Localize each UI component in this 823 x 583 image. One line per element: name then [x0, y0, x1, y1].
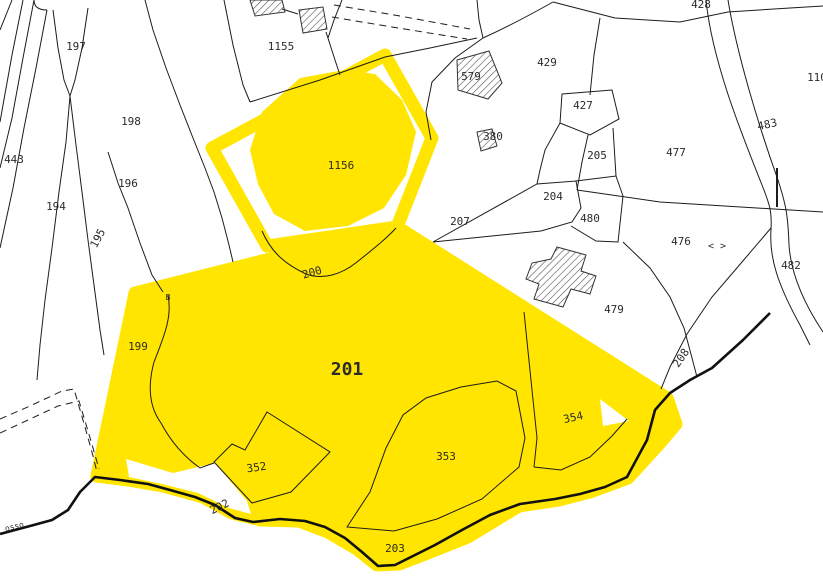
parcel-label-352: 352: [246, 460, 267, 476]
parcel-label-194: 194: [46, 200, 66, 213]
parcel-label-476: 476: [671, 235, 691, 248]
cadastral-map: 1971984431961941951991155115620020135235…: [0, 0, 823, 583]
parcel-label-201: 201: [331, 359, 364, 380]
parcel-label-204: 204: [543, 190, 563, 203]
annotation-label-<>: < >: [708, 241, 726, 252]
parcel-label-443: 443: [4, 153, 24, 166]
building-top-1: [250, 0, 285, 16]
annotation-label-B: B: [166, 293, 171, 302]
highlight-layer: [97, 55, 676, 565]
parcel-label-479: 479: [604, 303, 624, 316]
parcel-label-428: 428: [691, 0, 711, 11]
parcel-label-207: 207: [450, 215, 470, 228]
parcel-label-197: 197: [66, 40, 86, 53]
parcel-label-199: 199: [128, 340, 148, 353]
parcel-label-427: 427: [573, 99, 593, 112]
cadastral-map-viewport: 1971984431961941951991155115620020135235…: [0, 0, 823, 583]
parcel-label-380: 380: [483, 130, 503, 143]
parcel-label-483: 483: [756, 116, 778, 133]
parcel-label-477: 477: [666, 146, 686, 159]
parcel-label-1156: 1156: [328, 159, 355, 172]
parcel-label-353: 353: [436, 450, 456, 463]
parcel-label-480: 480: [580, 212, 600, 225]
building-top-2: [299, 7, 327, 33]
parcel-label-205: 205: [587, 149, 607, 162]
parcel-label-208: 208: [670, 346, 692, 370]
parcel-label-110: 110: [807, 71, 823, 84]
parcel-label-1155: 1155: [268, 40, 295, 53]
parcel-label-429: 429: [537, 56, 557, 69]
parcel-label-198: 198: [121, 115, 141, 128]
parcel-label-196: 196: [118, 177, 138, 190]
building-479: [526, 247, 596, 307]
parcel-label-482: 482: [781, 259, 801, 272]
parcel-label-195: 195: [88, 227, 109, 251]
parcel-label-203: 203: [385, 542, 405, 555]
parcel-label-579: 579: [461, 70, 481, 83]
